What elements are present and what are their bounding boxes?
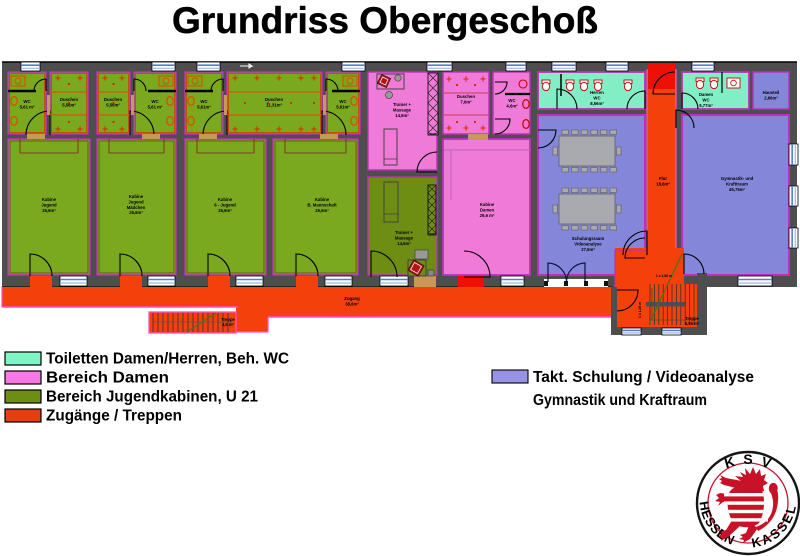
svg-text:Toiletten Damen/Herren, Beh. W: Toiletten Damen/Herren, Beh. WC [46,351,289,368]
svg-text:Zugang38,6m²: Zugang38,6m² [344,296,360,306]
svg-text:Hausteil2,66m²: Hausteil2,66m² [763,90,780,100]
svg-text:KabineDamen29,6 m²: KabineDamen29,6 m² [480,202,495,218]
svg-text:Bereich Damen: Bereich Damen [46,370,169,387]
svg-text:Duschen5,56m²: Duschen5,56m² [104,97,123,107]
svg-text:Duschen11,31m²: Duschen11,31m² [265,97,284,107]
svg-text:Duschen5,56m²: Duschen5,56m² [60,97,79,107]
svg-text:Bereich Jugendkabinen, U 21: Bereich Jugendkabinen, U 21 [46,389,258,406]
svg-text:1 x 1,06 m: 1 x 1,06 m [638,302,642,318]
svg-text:Takt. Schulung / Videoanalyse: Takt. Schulung / Videoanalyse [533,369,754,386]
svg-text:KabineJugend26,6m²: KabineJugend26,6m² [41,197,57,213]
svg-text:Treppe5,56 m²: Treppe5,56 m² [685,316,700,326]
svg-text:Treppe4,6 m²: Treppe4,6 m² [221,317,235,327]
svg-text:1 x 1,86 m: 1 x 1,86 m [656,274,672,278]
svg-text:Gymnastik und Kraftraum: Gymnastik und Kraftraum [533,392,707,409]
svg-text:Grundriss Obergeschoß: Grundriss Obergeschoß [172,0,598,41]
svg-text:Zugänge / Treppen: Zugänge / Treppen [46,408,182,425]
svg-text:S: S [743,451,752,467]
